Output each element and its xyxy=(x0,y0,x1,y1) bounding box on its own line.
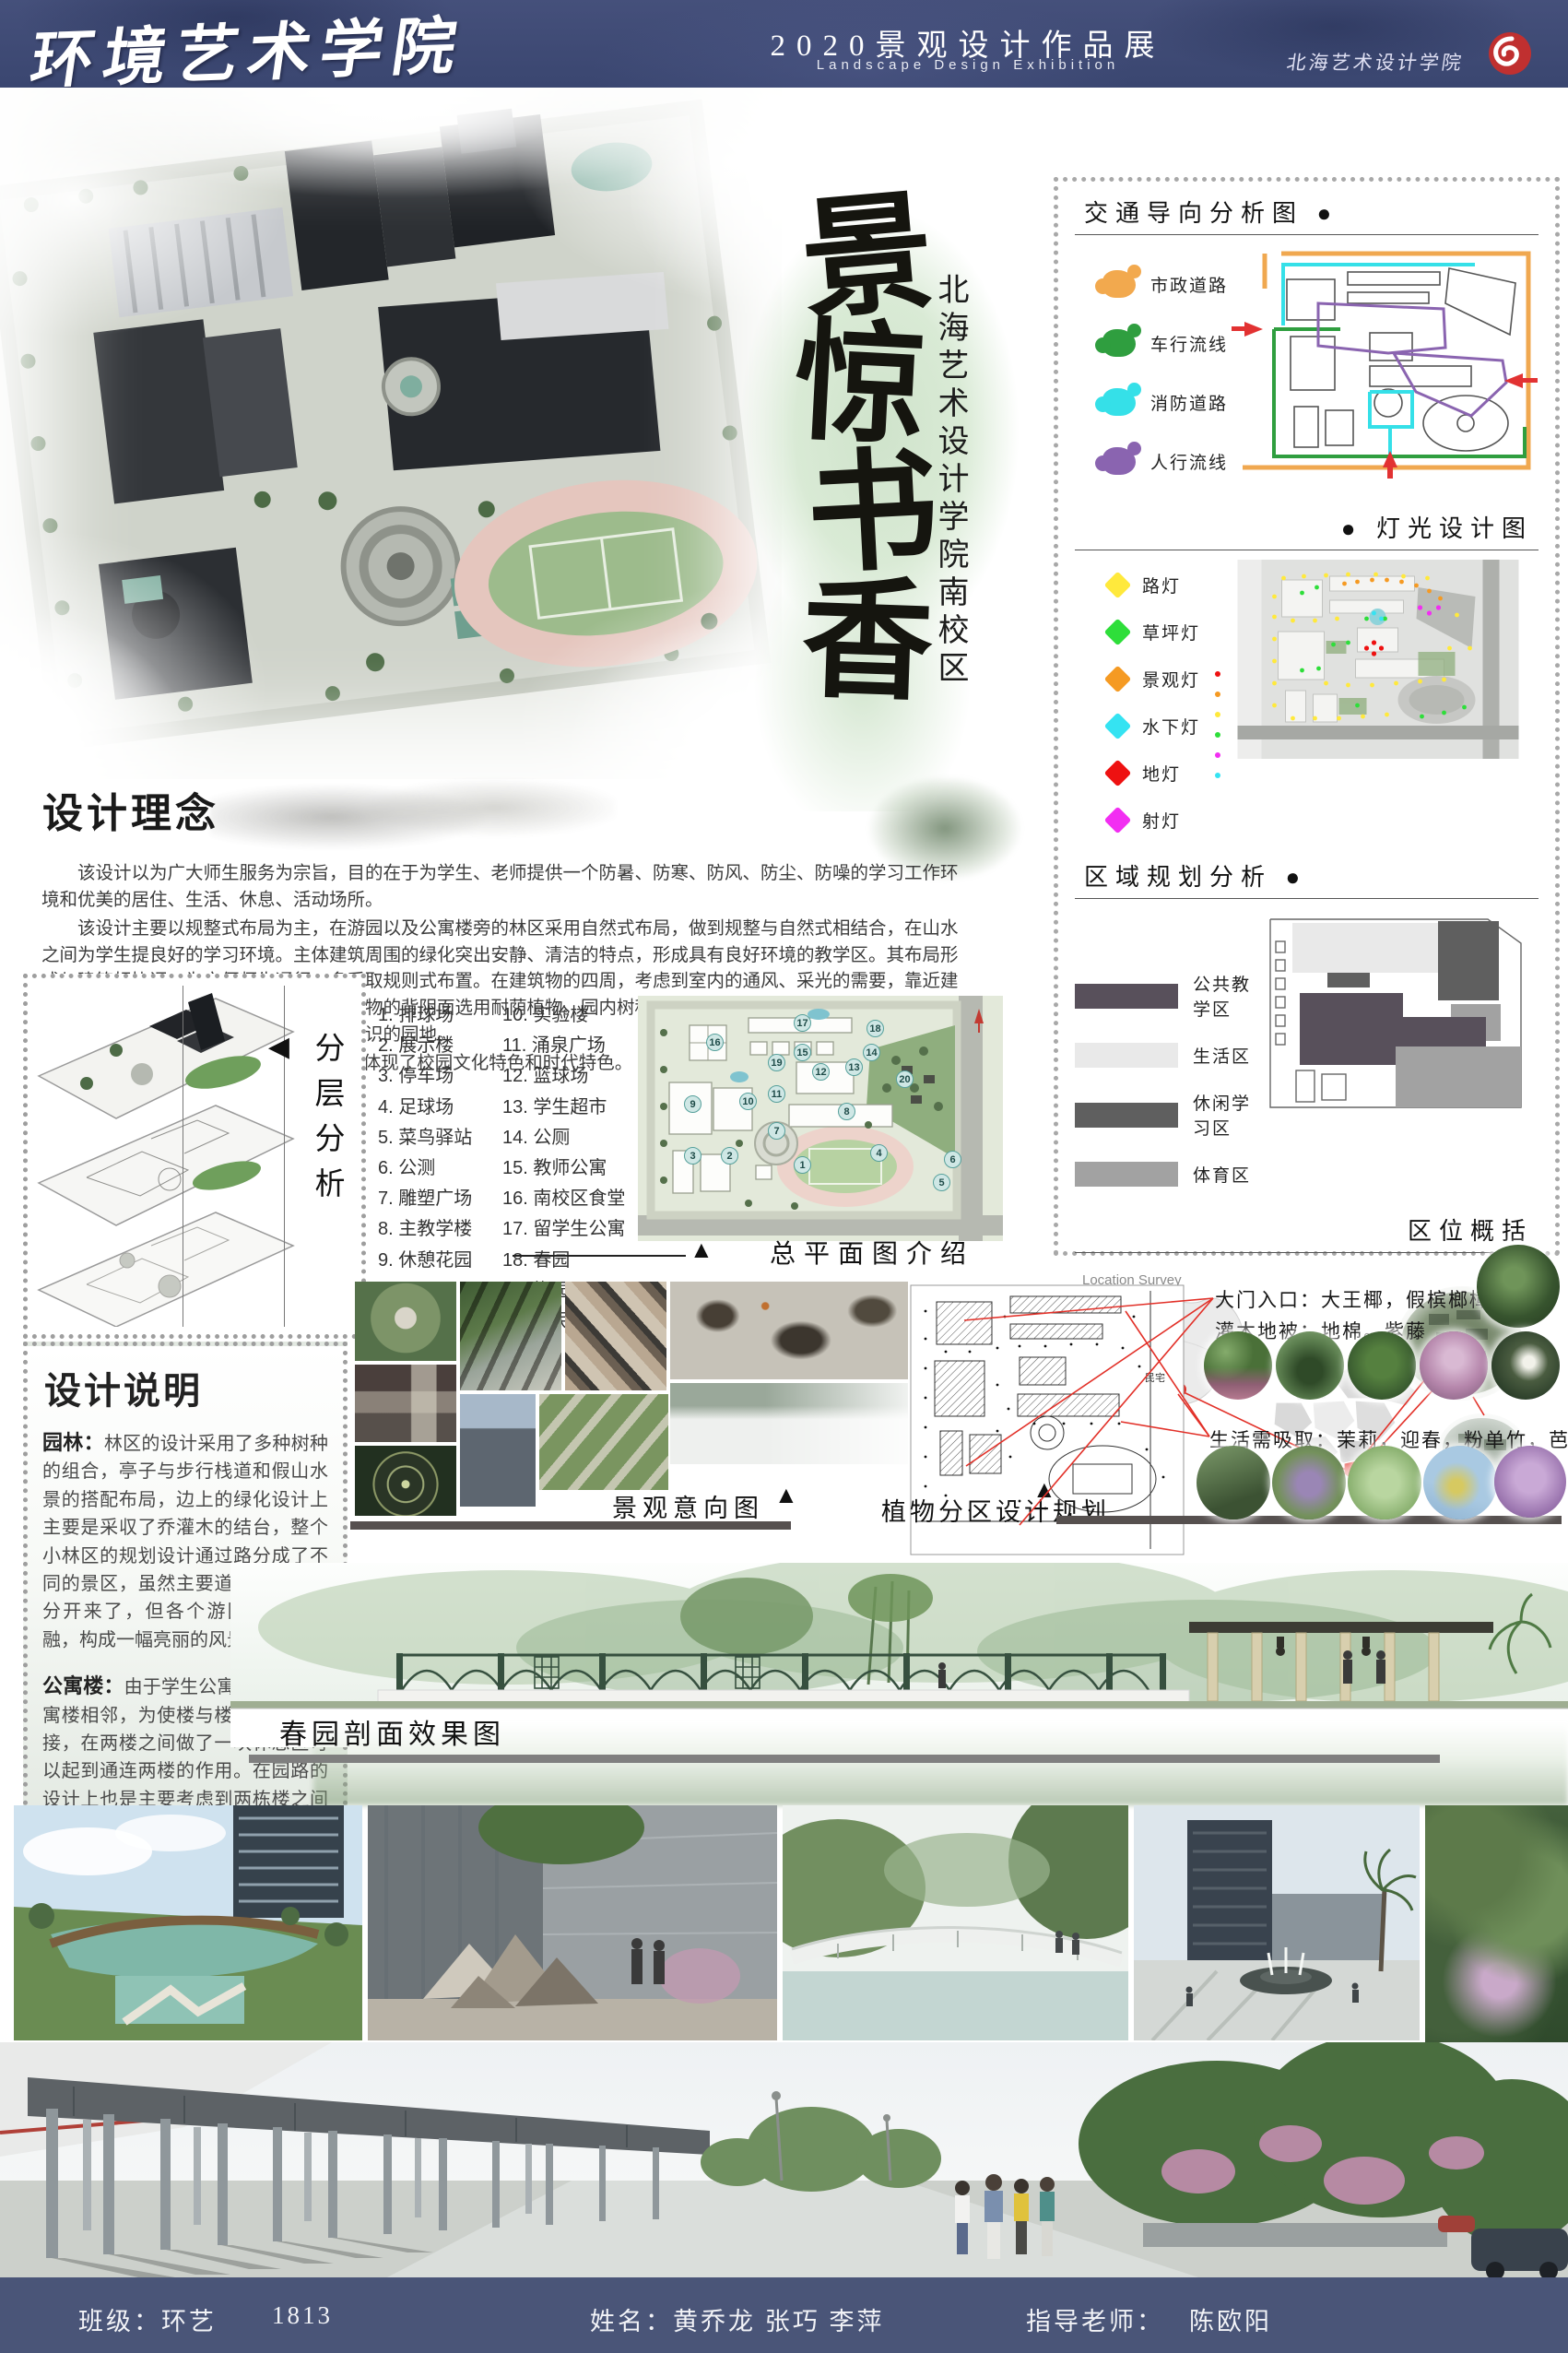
plan-marker: 5 xyxy=(933,1174,950,1191)
caption-rule xyxy=(513,1255,686,1257)
pedestrian-flow-swatch xyxy=(1102,447,1136,475)
render-pergola-walkway xyxy=(0,2042,1568,2277)
plan-marker: 1 xyxy=(794,1156,811,1174)
bullet-icon: ● xyxy=(1317,200,1339,227)
plan-marker: 8 xyxy=(838,1103,855,1120)
traffic-analysis-title: 交通导向分析图 ● xyxy=(1084,195,1542,229)
plan-marker: 12 xyxy=(812,1063,830,1081)
header-banner: 环境艺术学院 2020景观设计作品展 Landscape Design Exhi… xyxy=(0,0,1568,88)
lighting-legend: 路灯 草坪灯 景观灯 水下灯 地灯 射灯 xyxy=(1071,560,1209,855)
municipal-road-swatch xyxy=(1102,270,1136,298)
school-logo-icon xyxy=(1488,31,1532,76)
plant-photo-circle xyxy=(1423,1446,1497,1519)
plan-marker: 17 xyxy=(794,1014,811,1032)
intent-photo-city-park xyxy=(460,1394,536,1507)
sports-zone-swatch xyxy=(1075,1162,1178,1187)
plan-marker: 6 xyxy=(944,1151,961,1168)
plan-marker: 3 xyxy=(684,1147,701,1165)
plant-photo-circle xyxy=(1420,1331,1488,1400)
traffic-analysis-body: 市政道路 车行流线 消防道路 人行流线 xyxy=(1071,244,1542,506)
exploded-axon-diagram xyxy=(31,984,308,1327)
legend-item: 人行流线 xyxy=(1102,447,1230,475)
location-overview-title: 区位概括 xyxy=(1084,1212,1533,1247)
lighting-design-title: ● 灯光设计图 xyxy=(1084,510,1533,544)
class-number: 1813 xyxy=(272,2301,333,2330)
legend-item: 景观灯 xyxy=(1108,667,1209,692)
plan-marker: 7 xyxy=(768,1122,785,1140)
concept-para-1: 该设计以为广大师生服务为宗旨，目的在于为学生、老师提供一个防暑、防寒、防风、防尘… xyxy=(41,861,963,915)
analysis-panel: 交通导向分析图 ● 市政道路 车行流线 消防道路 人行流线 xyxy=(1054,177,1560,1256)
apartment-label: 公寓楼： xyxy=(42,1674,124,1697)
college-title: 环境艺术学院 xyxy=(26,0,473,101)
plant-photo-circle xyxy=(1348,1446,1421,1519)
plant-photo-circle xyxy=(1197,1446,1270,1519)
plan-marker: 15 xyxy=(794,1044,811,1061)
guide-line xyxy=(183,986,183,1327)
bullet-icon: ● xyxy=(1341,515,1363,542)
plant-photo-circle xyxy=(1272,1446,1346,1519)
lighting-design-body: 路灯 草坪灯 景观灯 水下灯 地灯 射灯 xyxy=(1071,560,1542,855)
school-seal-text: 北海艺术设计学院 xyxy=(1285,48,1466,76)
plan-legend-col1: 1. 排球场2. 展示楼 3. 停车场4. 足球场 5. 菜鸟驿站6. 公测 7… xyxy=(378,1000,472,1276)
plan-marker: 16 xyxy=(706,1034,724,1051)
divider xyxy=(1075,898,1539,899)
divider xyxy=(1075,234,1539,235)
advisor-name: 陈欧阳 xyxy=(1189,2301,1272,2337)
legend-item: 公共教学区 xyxy=(1075,971,1256,1021)
ground-lamp-swatch xyxy=(1104,760,1132,787)
divider xyxy=(1075,550,1539,550)
triangle-up-icon: ▲ xyxy=(690,1237,713,1261)
title-char: 香 xyxy=(787,576,949,710)
title-char: 惊 xyxy=(778,317,941,454)
advisor-label: 指导老师： xyxy=(1026,2301,1164,2337)
plan-marker: 2 xyxy=(721,1147,738,1165)
plant-photo-circle xyxy=(1494,1446,1566,1518)
bullet-icon: ● xyxy=(1286,864,1308,891)
campus-aerial-rendering xyxy=(0,88,782,779)
plan-marker: 18 xyxy=(867,1020,884,1037)
leisure-zone-swatch xyxy=(1075,1103,1178,1128)
concept-heading: 设计理念 xyxy=(42,780,219,839)
triangle-left-icon: ◀ xyxy=(268,1034,289,1061)
plan-marker: 19 xyxy=(768,1054,785,1071)
campus-name-vertical: 北海艺术设计学院南校区 xyxy=(927,273,973,808)
intent-photo-trees-aerial xyxy=(670,1282,908,1379)
render-fountain-plaza xyxy=(1134,1805,1420,2040)
plan-marker: 11 xyxy=(768,1085,785,1103)
landscape-lamp-swatch xyxy=(1104,666,1132,693)
divider xyxy=(1075,1252,1539,1253)
intent-caption: 景观意向图 xyxy=(612,1488,764,1524)
legend-item: 路灯 xyxy=(1108,573,1209,597)
intent-photo-night-plaza xyxy=(355,1446,456,1516)
legend-item: 生活区 xyxy=(1075,1043,1256,1068)
garden-label: 园林： xyxy=(42,1431,104,1454)
traffic-flow-map xyxy=(1230,244,1541,480)
plant-photo-circle xyxy=(1276,1331,1344,1400)
layer-analysis-box: ◀ 分层分析 xyxy=(23,974,366,1339)
exhibition-poster: 环境艺术学院 2020景观设计作品展 Landscape Design Exhi… xyxy=(0,0,1568,2353)
legend-item: 地灯 xyxy=(1108,761,1209,786)
legend-item: 射灯 xyxy=(1108,808,1209,833)
plan-marker: 13 xyxy=(845,1058,863,1076)
render-flowering-trees xyxy=(1425,1805,1568,2042)
zoning-analysis-body: 公共教学区 生活区 休闲学习区 体育区 xyxy=(1071,908,1542,1209)
description-heading: 设计说明 xyxy=(44,1361,328,1414)
lawn-lamp-swatch xyxy=(1104,619,1132,646)
teaching-zone-swatch xyxy=(1075,984,1178,1009)
legend-item: 体育区 xyxy=(1075,1162,1256,1187)
plan-marker: 10 xyxy=(739,1093,757,1110)
intent-photo-street-furniture xyxy=(355,1365,456,1442)
layer-analysis-label: 分层分析 xyxy=(304,1032,348,1212)
class-label: 班级：环艺 xyxy=(78,2301,217,2337)
lamp-dot-strip xyxy=(1209,560,1226,793)
legend-item: 休闲学习区 xyxy=(1075,1090,1256,1140)
fire-road-swatch xyxy=(1102,388,1136,416)
intent-photo-courtyard xyxy=(539,1394,668,1490)
road-lamp-swatch xyxy=(1104,572,1132,599)
master-plan-map: 1 2 3 4 5 6 7 8 9 10 11 12 13 14 15 16 1… xyxy=(638,996,1003,1241)
master-plan-caption: 总平面图介绍 xyxy=(726,1234,1018,1271)
legend-item: 消防道路 xyxy=(1102,388,1230,416)
poster-vertical-title: 景 惊 书 香 xyxy=(789,194,946,707)
render-water-garden xyxy=(14,1805,362,2040)
legend-item: 草坪灯 xyxy=(1108,620,1209,644)
cad-note-label: 民宅 xyxy=(1145,1371,1165,1384)
vehicle-flow-swatch xyxy=(1102,329,1136,357)
plan-marker: 9 xyxy=(684,1095,701,1113)
title-char: 景 xyxy=(784,187,950,328)
underwater-lamp-swatch xyxy=(1104,713,1132,740)
legend-item: 市政道路 xyxy=(1102,270,1230,298)
triangle-up-icon: ▲ xyxy=(774,1483,798,1507)
legend-item: 水下灯 xyxy=(1108,714,1209,739)
intent-photo-circular-plaza xyxy=(355,1282,456,1361)
intent-photo-garden-benches xyxy=(460,1282,561,1390)
living-zone-swatch xyxy=(1075,1043,1178,1068)
plant-photo-circle xyxy=(1348,1331,1416,1400)
intent-photo-paving-pattern xyxy=(565,1282,666,1390)
traffic-legend: 市政道路 车行流线 消防道路 人行流线 xyxy=(1071,244,1230,506)
spot-lamp-swatch xyxy=(1104,807,1132,834)
plant-photo-circle xyxy=(1204,1331,1272,1400)
exhibition-title-en: Landscape Design Exhibition xyxy=(710,57,1226,73)
plan-marker: 4 xyxy=(870,1144,888,1162)
render-rock-garden xyxy=(368,1805,777,2040)
student-names: 姓名：黄乔龙 张巧 李萍 xyxy=(590,2301,885,2337)
ink-smudge-decoration xyxy=(210,771,616,863)
plan-marker: 14 xyxy=(863,1044,880,1061)
intent-photo-white-cubes xyxy=(670,1383,908,1464)
zoning-legend: 公共教学区 生活区 休闲学习区 体育区 xyxy=(1071,908,1256,1209)
legend-item: 车行流线 xyxy=(1102,329,1230,357)
section-bar-gray xyxy=(249,1755,1440,1763)
zoning-plan-map xyxy=(1256,908,1532,1128)
section-bar xyxy=(350,1521,791,1530)
zoning-analysis-title: 区域规划分析 ● xyxy=(1084,858,1542,893)
plant-photo-circle xyxy=(1477,1245,1560,1328)
footer-bar: 班级：环艺 1813 姓名：黄乔龙 张巧 李萍 指导老师： 陈欧阳 xyxy=(0,2277,1568,2353)
spring-section-caption: 春园剖面效果图 xyxy=(279,1711,505,1752)
lighting-plan-map xyxy=(1226,560,1530,759)
render-curved-walkway xyxy=(783,1805,1128,2040)
plant-photo-circle xyxy=(1491,1331,1560,1400)
plan-marker: 20 xyxy=(896,1070,914,1088)
triangle-up-icon: ▲ xyxy=(1032,1477,1056,1501)
entrance-plants-text: 大门入口：大王椰，假槟榔樟树 xyxy=(1215,1285,1512,1313)
